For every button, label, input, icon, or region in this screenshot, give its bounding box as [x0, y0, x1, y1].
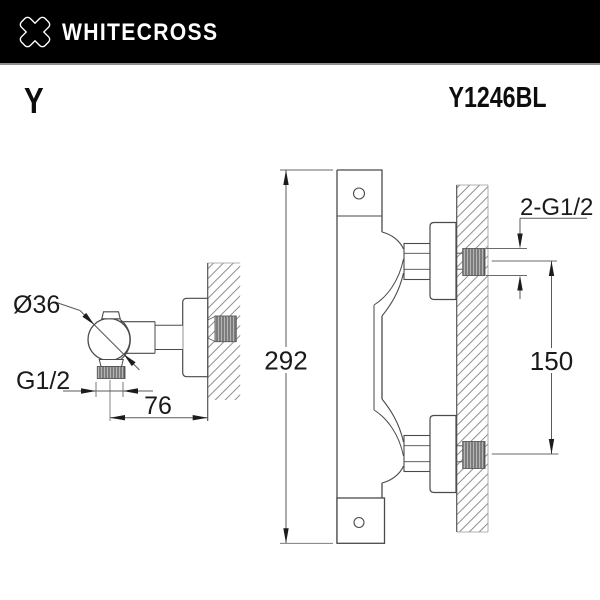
top-screw-hole [354, 188, 365, 199]
side-view: Ø36 G1/2 76 [13, 263, 240, 421]
dim-label-wall-threads: 2-G1/2 [520, 194, 593, 221]
page: WHITECROSS Y Y1246BL [0, 0, 600, 600]
side-view-pipe-narrow [155, 325, 183, 349]
dim-label-outlet-thread: G1/2 [16, 367, 70, 395]
side-view-outlet [97, 360, 125, 379]
side-view-flange [183, 298, 208, 376]
dimension-wall-distance: 76 [110, 392, 208, 420]
dimension-inlet-spacing: 150 [492, 261, 573, 454]
dim-label-wall-distance: 76 [144, 392, 172, 420]
dimension-wall-threads: 2-G1/2 [486, 194, 593, 299]
lower-wall-thread [463, 442, 485, 469]
dimension-height: 292 [264, 170, 333, 543]
upper-wall-thread [463, 249, 485, 276]
dim-label-height: 292 [264, 346, 307, 376]
dimension-outlet-thread: G1/2 [16, 367, 153, 397]
dim-label-inlet-spacing: 150 [530, 346, 573, 376]
technical-drawing-canvas: Ø36 G1/2 76 [0, 0, 600, 600]
front-view-body-column [337, 170, 385, 543]
bottom-screw-hole [354, 518, 364, 528]
front-view: 292 150 2-G1/2 [264, 170, 593, 543]
front-view-wall [457, 185, 488, 532]
side-view-top-cap [102, 312, 120, 319]
dim-label-diameter: Ø36 [13, 291, 60, 319]
